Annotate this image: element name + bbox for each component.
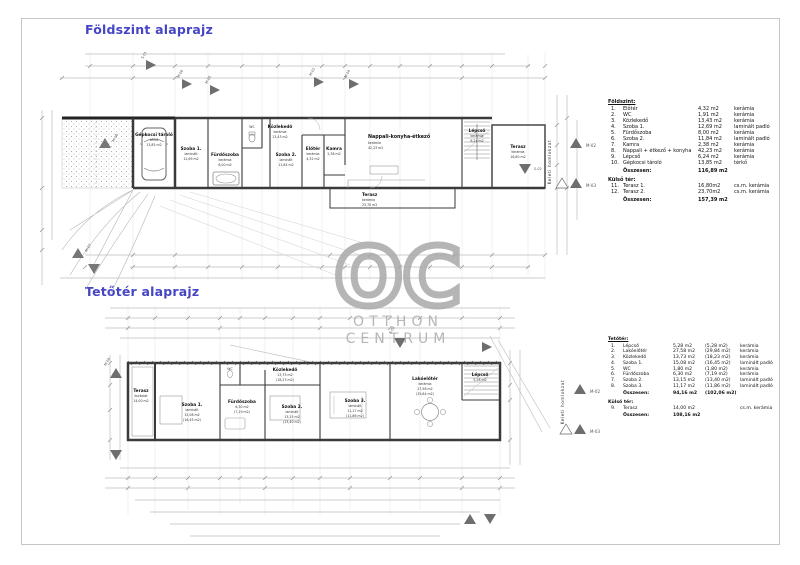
room-area-lepcso: 6,24 m2 [470,139,483,143]
room-area-szoba3: 11,17 m2 [347,409,362,413]
room-area-kozlekedo: 13,43 m2 [272,135,287,139]
fixtures [160,366,498,429]
marker-label-m02: M-02 [586,143,596,148]
legend-total-row: Összesen:108,16 m2 [608,413,784,419]
marker-label-s02: S-02 [534,167,542,171]
marker-label-m05: M-05 [204,75,212,84]
room-mat-eloter: kerámia [307,152,320,156]
marker-label-m03: M-03 [590,429,600,434]
room-area-szoba1: 12,69 m2 [183,157,198,161]
facade-marker-icon [210,85,220,95]
room-area-lepcso: 5,28 m2 [473,378,486,382]
room-mat-furdo: kerámia [219,158,232,162]
marker-label-m07: M-07 [84,243,92,252]
room-paren-szoba1: (16,45 m2) [183,418,201,422]
facade-marker-icon [570,138,582,148]
facade-direction-label: Keleti homlokzat [547,140,552,184]
room-paren-furdo: (7,19 m2) [234,410,250,414]
room-label-wc: WC [249,125,255,129]
room-paren-lakoeloter: (29,84 m2) [416,392,434,396]
facade-direction-label: Keleti homlokzat [560,380,565,424]
room-mat-lepcso: kerámia [471,134,484,138]
room-area-furdo: 8,00 m2 [218,163,231,167]
room-mat-szoba1: laminált [186,408,200,412]
ground-room-labels: Gépkocsi tároló térkő 13,85 m2 Szoba 1. … [135,124,526,207]
legend-header: Tetőtér: [608,337,784,343]
marker-label-m01: M-01 [308,67,316,76]
room-mat-lakoeloter: kerámia [419,382,432,386]
room-area-szoba1: 15,08 m2 [184,413,199,417]
marker-label-m04: M-04 [343,69,351,78]
drawing-sheet: { "titles": { "ground": "Földszint alapr… [0,0,800,565]
walls [128,361,500,440]
ground-floor-legend: Földszint: 1.Előtér4,32 m2kerámia 2.WC1,… [608,99,780,203]
room-area-terasz: 14,00 m2 [133,399,148,403]
room-area-furdo: 6,30 m2 [235,405,248,409]
legend-row: 10.Gépkocsi tároló13,85 m2térkő [608,160,780,166]
attic-legend: Tetőtér: 1.Lépcső5,28 m2(5,28 m2)kerámia… [608,337,784,419]
room-area-lakoeloter: 27,58 m2 [417,387,432,391]
room-label-lakoeloter: Lakóelőtér [412,375,439,382]
legend-total-row: Összesen:157,39 m2 [608,197,780,203]
room-mat-szoba2: laminált [280,158,294,162]
facade-marker-icon [574,424,586,434]
facade-marker-icon [182,79,192,89]
watermark-line1: OTTHON [353,314,443,330]
room-label-nappali: Nappali-konyha-étkező [368,133,431,140]
room-area-eloter: 4,32 m2 [306,157,319,161]
room-label-gepkocsi: Gépkocsi tároló [135,131,173,138]
marker-label-m02: M-02 [590,389,600,394]
facade-marker-icon [72,248,84,258]
room-mat-kozlekedo: kerámia [274,130,287,134]
room-mat-szoba1: laminált [185,152,199,156]
legend-sum-row: Összesen:94,16 m2(102,06 m2) [608,391,784,397]
room-area-nappali: 42,23 m2 [368,146,383,150]
room-area-szoba2: 11,84 m2 [278,163,293,167]
bathtub-icon [225,418,245,429]
section-marker-icon [146,60,156,70]
section-marker-icon [519,164,531,174]
watermark-logo-initials: OC [335,231,462,324]
room-mat-szoba2: laminált [286,410,300,414]
section-marker-icon [484,514,496,524]
section-marker-icon [464,514,476,524]
facade-marker-icon [570,178,582,188]
room-paren-szoba2: (13,40 m2) [283,420,301,424]
facade-marker-open-icon [556,178,568,188]
facade-marker-open-icon [560,424,572,434]
ground-floor-title: Földszint alaprajz [85,22,213,37]
room-area-kozlekedo: 13,73 m2 [277,373,292,377]
toilet-icon [227,371,232,378]
marker-label-m06: M-06 [176,69,184,78]
legend-row: 12.Terasz 2.23,70m2cs.m. kerámia [608,189,780,195]
room-area-gepkocsi: 13,85 m2 [146,143,161,147]
facade-marker-icon [349,79,359,89]
attic-room-labels: Terasz burkolat 14,00 m2 Szoba 1. laminá… [133,367,488,424]
section-marker-icon [482,342,492,352]
legend-header: Földszint: [608,99,780,105]
legend-row: 8.Szoba 3.11,17 m2(11,86 m2)laminált pad… [608,384,784,390]
otthon-centrum-watermark: OC OTTHON CENTRUM [318,230,478,348]
room-paren-szoba3: (11,86 m2) [346,414,364,418]
room-mat-terasz1: kerámia [512,150,525,154]
facade-marker-icon [574,384,586,394]
room-mat-terasz2: kerámia [362,198,375,202]
room-area-terasz1: 16,80 m2 [510,155,525,159]
watermark-line2: CENTRUM [346,331,451,347]
attic-markers: S-02 M-04 M-02 M-03 Keleti homlokzat [103,326,600,524]
room-mat-szoba3: laminált [349,404,363,408]
room-label-wc: WC [227,367,233,371]
room-mat-nappali: kerámia [368,141,381,145]
furniture [160,396,182,424]
marker-label-m03: M-03 [586,183,596,188]
room-label-eloter: Előtér [306,145,321,152]
room-mat-gepkocsi: térkő [150,138,158,142]
legend-row: 9.Terasz14,00 m2cs.m. kerámia [608,406,784,412]
room-area-kamra: 2,38 m2 [327,152,340,156]
room-area-szoba2: 13,15 m2 [284,415,299,419]
marker-label-s01: S-01 [140,51,147,60]
facade-marker-icon [314,77,324,87]
table-icon [422,404,439,421]
room-area-terasz2: 23,70 m2 [362,203,377,207]
legend-sum-row: Összesen:116,89 m2 [608,168,780,174]
room-label-lepcso: Lépcső [469,127,486,134]
room-label-lepcso: Lépcső [472,371,489,378]
room-paren-kozlekedo: (18,23 m2) [276,378,294,382]
room-mat-terasz: burkolat [134,394,148,398]
